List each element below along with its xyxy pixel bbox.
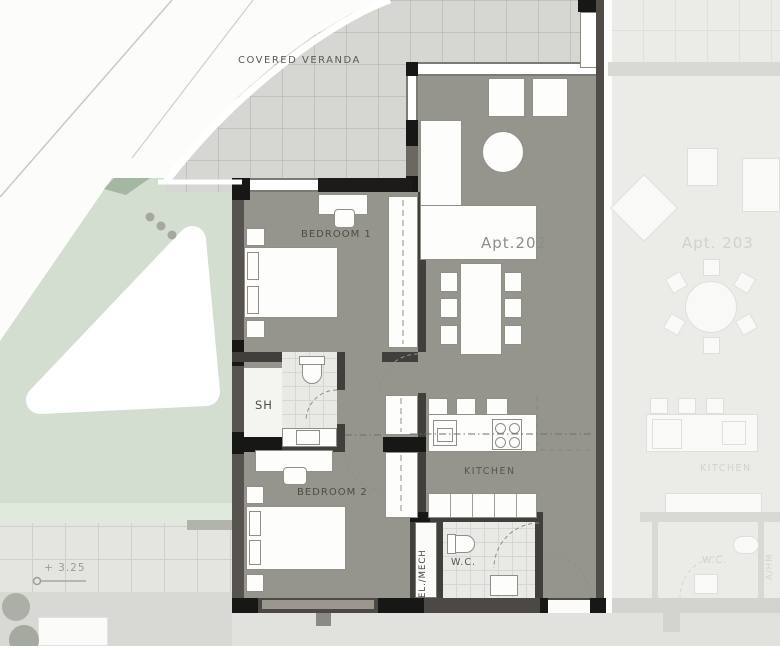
elevation-label: + 3.25 — [44, 563, 86, 574]
sink-basin — [437, 428, 453, 442]
toilet — [302, 364, 322, 384]
pillow — [249, 511, 261, 536]
burner — [509, 437, 520, 448]
burner — [495, 423, 506, 434]
wardrobe — [385, 395, 418, 435]
chair — [440, 325, 458, 345]
desk-chair — [283, 467, 307, 485]
entry-stub — [663, 598, 680, 632]
kitchen-202-label: KITCHEN — [464, 467, 516, 477]
veranda-label: COVERED VERANDA — [238, 56, 361, 66]
bedroom-1-label: BEDROOM 1 — [301, 230, 372, 240]
toilet — [455, 535, 475, 553]
kitchen-203-label: KITCHEN — [700, 464, 752, 474]
window — [250, 178, 318, 192]
el-mech-label: EL./MECH — [419, 524, 428, 598]
chair — [504, 298, 522, 318]
sink — [722, 421, 746, 445]
apartment-202-label: Apt.202 — [481, 236, 547, 251]
veranda-apt203 — [612, 0, 780, 62]
wall-column — [232, 178, 250, 200]
kitchen-cabinets — [428, 493, 537, 518]
wall — [337, 352, 345, 390]
window — [262, 600, 374, 609]
floor-plan: COVERED VERANDA Apt.202 Apt. 203 BEDROOM… — [0, 0, 780, 646]
nightstand — [246, 228, 265, 246]
wall — [318, 178, 412, 192]
cabinet — [742, 158, 780, 212]
burner — [509, 423, 520, 434]
cabinet-divider — [450, 494, 451, 517]
wall-column — [378, 598, 424, 613]
wall-column — [406, 62, 418, 76]
wall — [640, 512, 780, 522]
bar-stool — [678, 398, 696, 414]
apartment-203-label: Apt. 203 — [682, 236, 754, 251]
wall — [758, 522, 764, 598]
shower-label: SH — [255, 400, 273, 412]
window — [406, 76, 418, 120]
entrance-door-opening — [548, 600, 590, 613]
chair — [440, 272, 458, 292]
curb-step — [187, 520, 232, 530]
wall — [652, 522, 658, 598]
window — [580, 12, 597, 68]
wall-column — [590, 598, 606, 613]
door-jamb — [540, 598, 548, 613]
round-dining-table — [685, 281, 737, 333]
sink — [296, 430, 320, 445]
nightstand — [246, 486, 264, 504]
cabinet-divider — [516, 494, 517, 517]
stove — [652, 419, 682, 449]
window — [418, 62, 596, 76]
chair — [504, 272, 522, 292]
cabinet — [687, 148, 718, 186]
walkway-tiles — [0, 523, 235, 592]
window-sill — [406, 146, 418, 176]
wardrobe — [388, 196, 418, 348]
wall — [337, 424, 345, 437]
wall-column — [232, 598, 258, 613]
armchair — [532, 78, 568, 117]
chair — [703, 337, 720, 354]
tree-canopy — [2, 593, 30, 621]
coffee-table — [482, 131, 524, 173]
bed — [246, 506, 346, 570]
armchair — [488, 78, 525, 117]
dining-table — [460, 263, 502, 355]
bedroom-2-label: BEDROOM 2 — [297, 488, 368, 498]
nightstand — [246, 574, 264, 592]
burner — [495, 437, 506, 448]
pillow — [247, 252, 259, 280]
nightstand — [246, 320, 265, 338]
wall — [535, 512, 543, 570]
bar-stool — [706, 398, 724, 414]
bar-stool — [650, 398, 668, 414]
sidewalk-bottom — [232, 613, 780, 646]
wall — [612, 598, 780, 613]
wall — [232, 200, 244, 598]
cabinet-divider — [472, 494, 473, 517]
chair — [504, 325, 522, 345]
pillow — [249, 540, 261, 565]
cabinet-divider — [494, 494, 495, 517]
chair — [703, 259, 720, 276]
wc-202-label: W.C. — [451, 558, 476, 568]
sink — [490, 575, 518, 596]
wall — [383, 437, 426, 452]
planter-box — [38, 617, 108, 646]
green-area — [0, 178, 232, 504]
downpipe-tab — [316, 613, 331, 626]
wc-203-label: W.C. — [702, 556, 727, 566]
a-hm-label: A/HM — [766, 540, 775, 580]
wardrobe — [385, 452, 418, 518]
wall — [382, 352, 418, 362]
wall — [535, 568, 543, 598]
toilet — [733, 536, 759, 554]
sink — [694, 574, 718, 594]
wall — [608, 62, 780, 76]
wall — [596, 0, 604, 613]
desk-chair — [334, 209, 355, 228]
wall-column — [406, 120, 418, 146]
pillow — [247, 286, 259, 314]
chair — [440, 298, 458, 318]
